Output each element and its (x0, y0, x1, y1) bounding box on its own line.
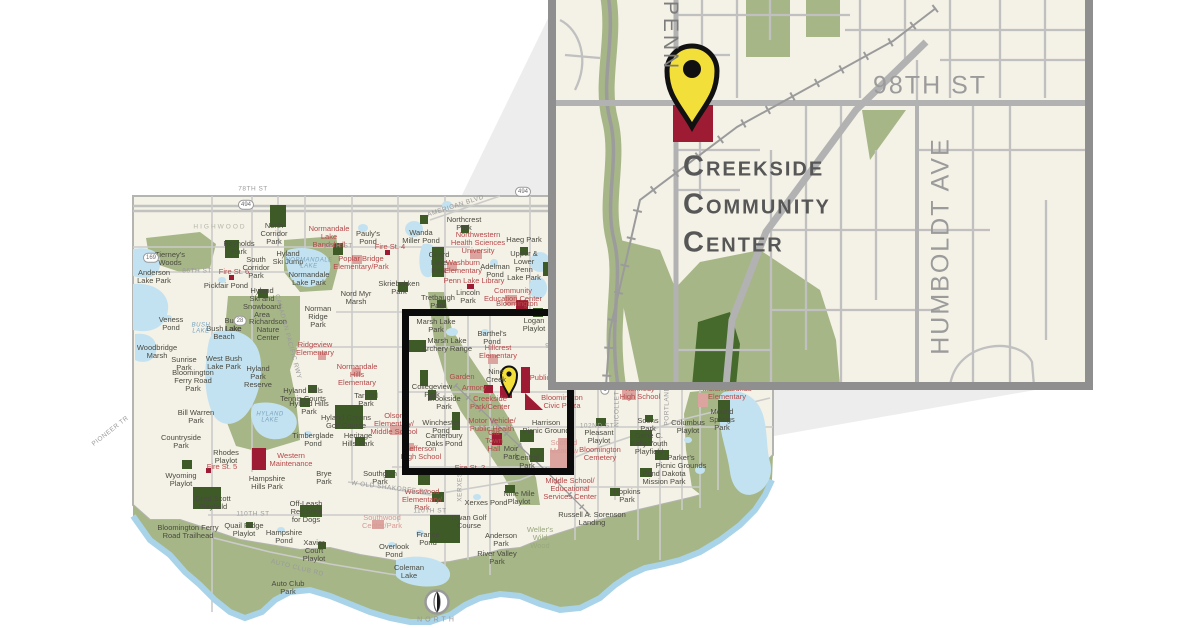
creekside-locator-map: Tierney's WoodsAnderson Lake ParkReynold… (0, 0, 1200, 628)
inset-map (0, 0, 1200, 628)
